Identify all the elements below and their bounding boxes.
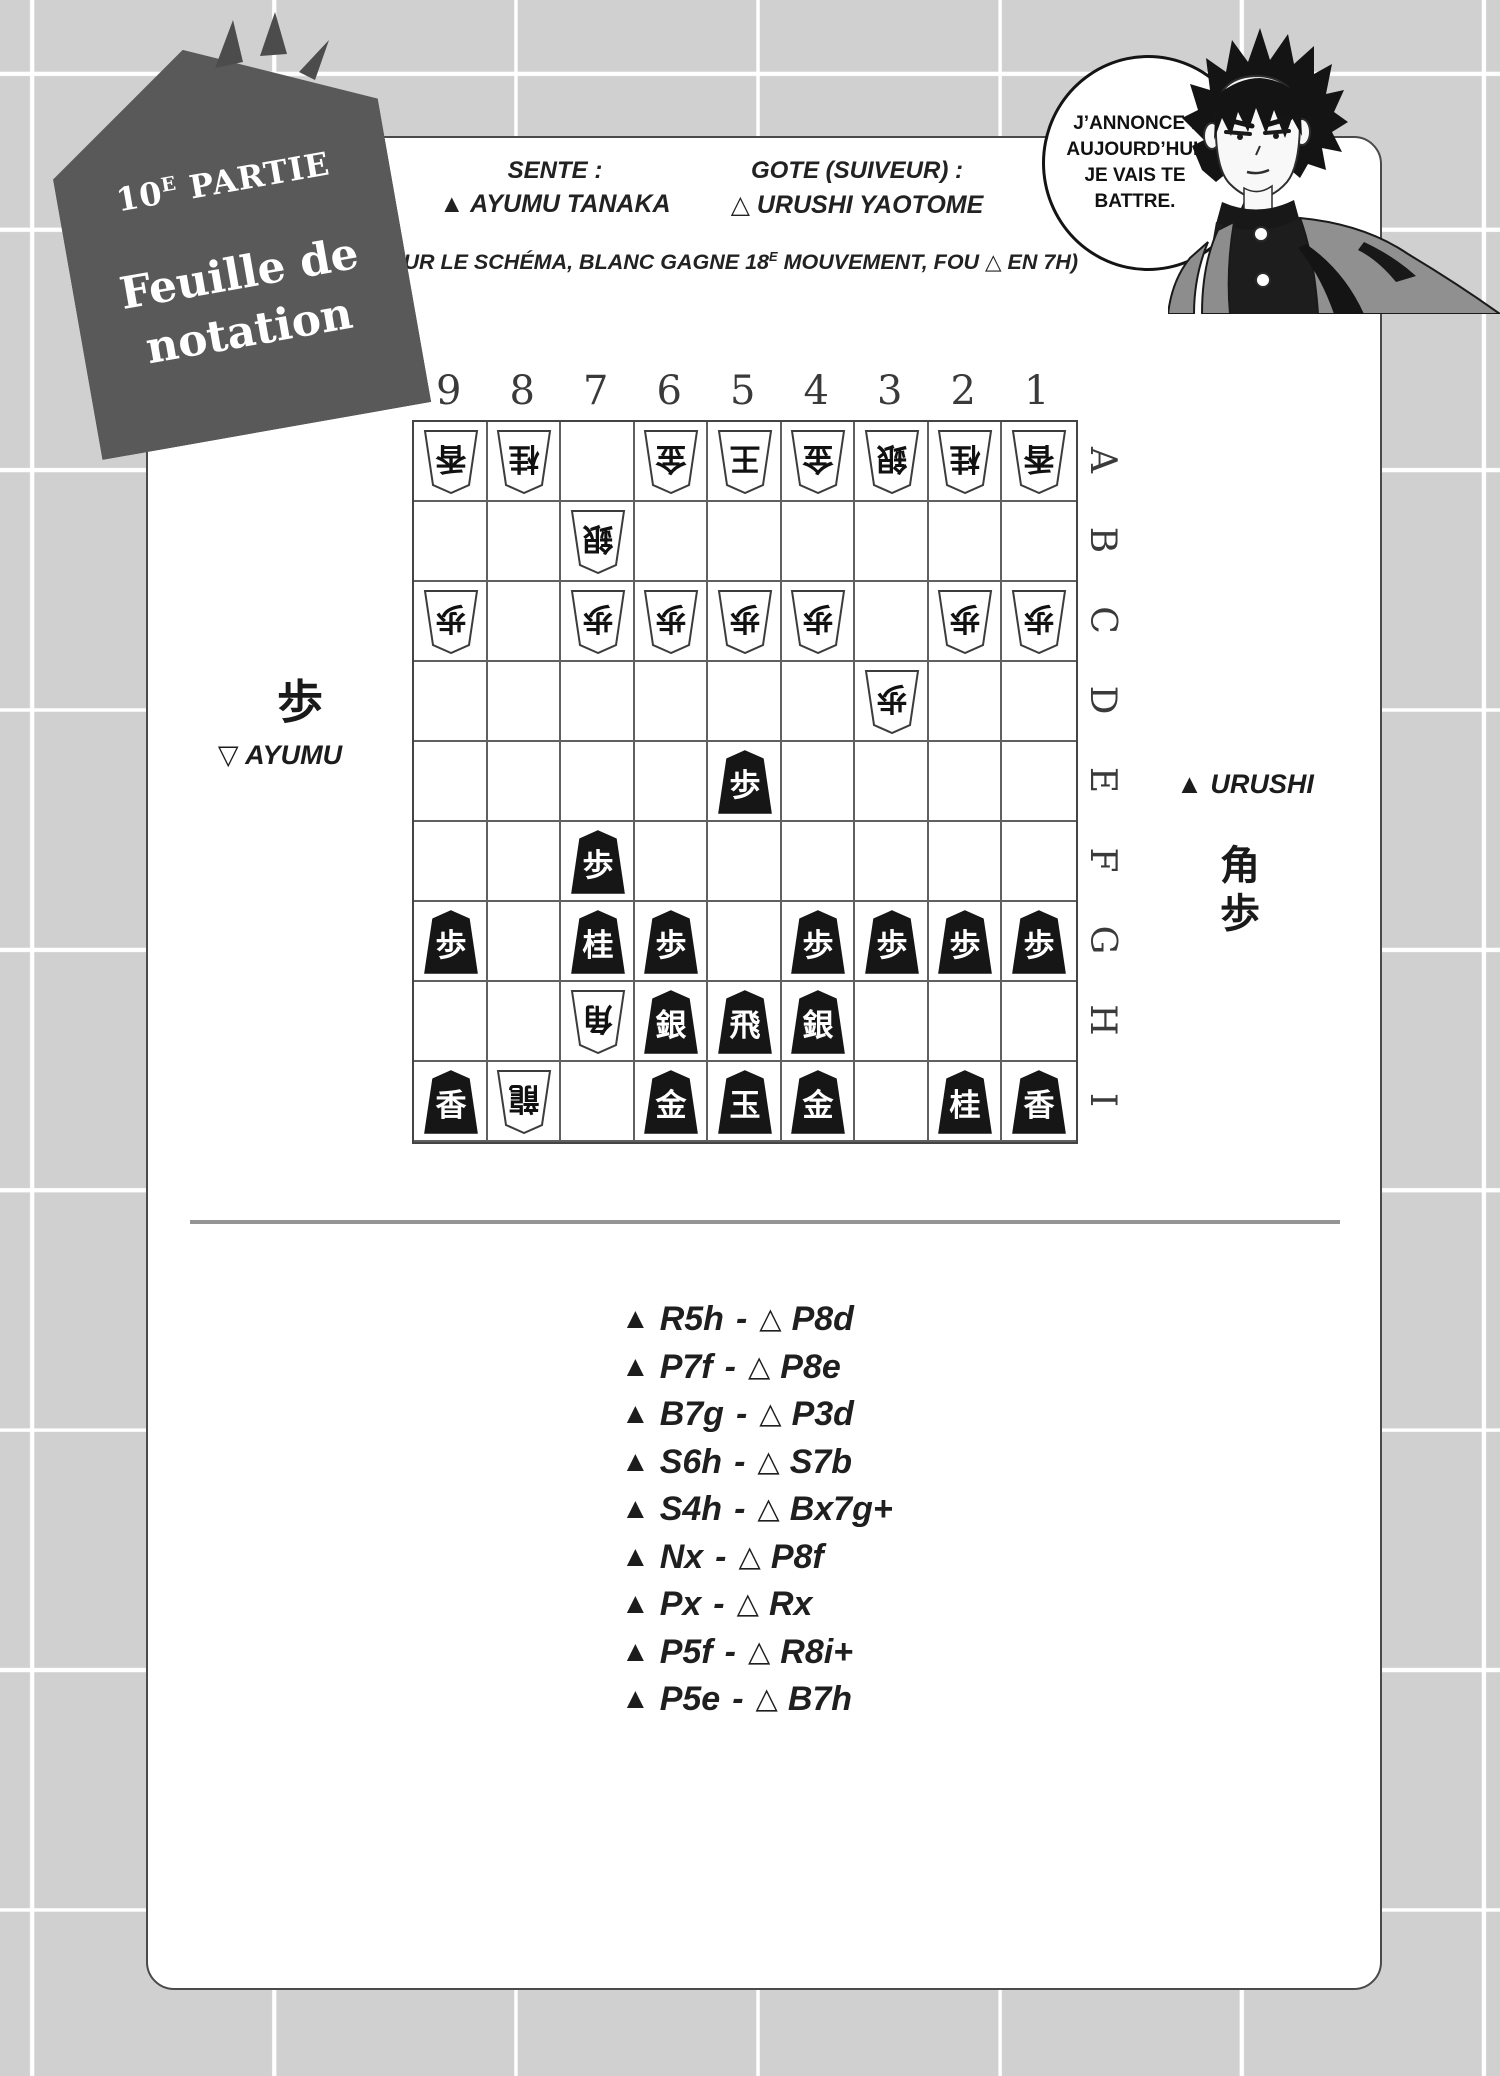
move-separator: - bbox=[732, 1680, 743, 1719]
column-label: 8 bbox=[486, 368, 560, 414]
shogi-piece-sente: 歩 bbox=[716, 749, 774, 815]
svg-text:龍: 龍 bbox=[509, 1080, 540, 1116]
board-cell bbox=[561, 662, 635, 742]
shogi-piece-gote: 歩 bbox=[863, 669, 921, 735]
svg-text:飛: 飛 bbox=[729, 1008, 760, 1044]
sente-mark: ▲ bbox=[621, 1543, 650, 1572]
character-drawing bbox=[1168, 18, 1500, 314]
shogi-piece-gote: 香 bbox=[422, 429, 480, 495]
left-player-label: ▽ AYUMU bbox=[150, 740, 410, 771]
svg-text:金: 金 bbox=[655, 440, 688, 476]
sente-mark: ▲ bbox=[621, 1685, 650, 1714]
shogi-piece-sente: 歩 bbox=[642, 909, 700, 975]
move-row: ▲P7f-△P8e bbox=[621, 1344, 893, 1392]
shogi-piece-gote: 歩 bbox=[1010, 589, 1068, 655]
shogi-piece-sente: 金 bbox=[642, 1069, 700, 1135]
svg-text:歩: 歩 bbox=[582, 848, 613, 884]
move-row: ▲P5e-△B7h bbox=[621, 1676, 893, 1724]
svg-text:桂: 桂 bbox=[950, 440, 981, 476]
sente-mark: ▲ bbox=[621, 1305, 650, 1334]
board-cell bbox=[929, 662, 1003, 742]
sente-mark: ▲ bbox=[621, 1495, 650, 1524]
shogi-piece-sente: 歩 bbox=[936, 909, 994, 975]
shogi-piece-sente: 飛 bbox=[716, 989, 774, 1055]
gote-mark: △ bbox=[737, 1590, 759, 1619]
move-separator: - bbox=[734, 1490, 745, 1529]
board-cell bbox=[414, 982, 488, 1062]
move-separator: - bbox=[725, 1633, 736, 1672]
board-cell bbox=[488, 582, 562, 662]
svg-text:金: 金 bbox=[802, 1088, 835, 1124]
board-cell bbox=[782, 662, 856, 742]
board-cell bbox=[488, 822, 562, 902]
urushi-hand-pieces: 角 歩 bbox=[1198, 842, 1282, 938]
sente-move: P5f bbox=[660, 1633, 713, 1672]
shogi-piece-sente: 桂 bbox=[936, 1069, 994, 1135]
gote-label: GOTE (SUIVEUR) : bbox=[692, 157, 1022, 185]
column-label: 7 bbox=[559, 368, 633, 414]
shogi-piece-sente: 歩 bbox=[789, 909, 847, 975]
svg-text:歩: 歩 bbox=[950, 600, 981, 636]
board-cell bbox=[635, 662, 709, 742]
right-player-label: ▲ URUSHI bbox=[1110, 769, 1380, 800]
gote-move: Rx bbox=[769, 1585, 812, 1624]
shogi-piece-gote: 歩 bbox=[642, 589, 700, 655]
shogi-piece-sente: 金 bbox=[789, 1069, 847, 1135]
svg-text:香: 香 bbox=[435, 1088, 466, 1124]
board-cell bbox=[855, 822, 929, 902]
svg-text:歩: 歩 bbox=[803, 928, 834, 964]
move-row: ▲P5f-△R8i+ bbox=[621, 1629, 893, 1677]
move-separator: - bbox=[725, 1348, 736, 1387]
svg-text:銀: 銀 bbox=[803, 1008, 834, 1044]
svg-text:角: 角 bbox=[582, 1000, 613, 1036]
board-cell bbox=[414, 502, 488, 582]
shogi-piece-gote: 歩 bbox=[569, 589, 627, 655]
svg-text:歩: 歩 bbox=[1023, 600, 1054, 636]
gote-mark: △ bbox=[748, 1638, 770, 1667]
shogi-piece-gote: 歩 bbox=[716, 589, 774, 655]
gote-move: P8d bbox=[792, 1300, 854, 1339]
shogi-piece-gote: 香 bbox=[1010, 429, 1068, 495]
gote-mark: △ bbox=[759, 1305, 781, 1334]
shogi-piece-gote: 龍 bbox=[495, 1069, 553, 1135]
board-cell bbox=[414, 822, 488, 902]
board-cell bbox=[488, 902, 562, 982]
move-list: ▲R5h-△P8d▲P7f-△P8e▲B7g-△P3d▲S6h-△S7b▲S4h… bbox=[621, 1296, 893, 1724]
move-separator: - bbox=[736, 1300, 747, 1339]
svg-text:歩: 歩 bbox=[876, 680, 907, 716]
shogi-piece-sente: 香 bbox=[422, 1069, 480, 1135]
column-label: 2 bbox=[927, 368, 1001, 414]
shogi-piece-sente: 玉 bbox=[716, 1069, 774, 1135]
column-label: 6 bbox=[633, 368, 707, 414]
board-cell bbox=[929, 982, 1003, 1062]
column-label: 5 bbox=[706, 368, 780, 414]
board-cell bbox=[488, 662, 562, 742]
board-cell bbox=[782, 742, 856, 822]
board-cell bbox=[561, 422, 635, 502]
sente-mark: ▲ bbox=[621, 1400, 650, 1429]
sente-mark: ▲ bbox=[621, 1638, 650, 1667]
svg-text:香: 香 bbox=[1023, 1088, 1054, 1124]
move-separator: - bbox=[734, 1443, 745, 1482]
gote-move: S7b bbox=[790, 1443, 852, 1482]
svg-text:歩: 歩 bbox=[950, 928, 981, 964]
chapter-number: 10E PARTIE bbox=[55, 134, 391, 229]
shogi-piece-sente: 銀 bbox=[642, 989, 700, 1055]
board-cell bbox=[414, 742, 488, 822]
board-cell bbox=[488, 502, 562, 582]
shogi-piece-sente: 歩 bbox=[569, 829, 627, 895]
board-cell bbox=[414, 662, 488, 742]
sente-move: S6h bbox=[660, 1443, 722, 1482]
gote-move: P8f bbox=[771, 1538, 824, 1577]
svg-text:桂: 桂 bbox=[582, 928, 613, 964]
emphasis-sparkles-icon bbox=[205, 10, 335, 94]
gote-move: P8e bbox=[780, 1348, 841, 1387]
move-row: ▲Nx-△P8f bbox=[621, 1534, 893, 1582]
gote-mark: △ bbox=[757, 1495, 779, 1524]
svg-text:銀: 銀 bbox=[582, 520, 613, 556]
sente-header: SENTE : ▲ AYUMU TANAKA bbox=[390, 157, 720, 219]
svg-text:金: 金 bbox=[802, 440, 835, 476]
gote-move: R8i+ bbox=[780, 1633, 853, 1672]
column-label: 3 bbox=[853, 368, 927, 414]
svg-text:銀: 銀 bbox=[656, 1008, 687, 1044]
svg-text:歩: 歩 bbox=[656, 600, 687, 636]
gote-mark: △ bbox=[756, 1685, 778, 1714]
sente-move: B7g bbox=[660, 1395, 724, 1434]
board-cell bbox=[561, 742, 635, 822]
board-cell bbox=[929, 822, 1003, 902]
sente-move: Nx bbox=[660, 1538, 703, 1577]
board-cell bbox=[488, 742, 562, 822]
gote-player-name: △ URUSHI YAOTOME bbox=[692, 190, 1022, 220]
sente-mark: ▲ bbox=[621, 1448, 650, 1477]
shogi-piece-gote: 歩 bbox=[422, 589, 480, 655]
svg-text:歩: 歩 bbox=[1023, 928, 1054, 964]
svg-text:歩: 歩 bbox=[435, 928, 466, 964]
gote-mark: △ bbox=[757, 1448, 779, 1477]
board-cell bbox=[855, 742, 929, 822]
ayumu-hand-pieces: 歩 bbox=[258, 666, 342, 732]
move-row: ▲Px-△Rx bbox=[621, 1581, 893, 1629]
sente-player-name: ▲ AYUMU TANAKA bbox=[390, 190, 720, 219]
shogi-piece-gote: 歩 bbox=[936, 589, 994, 655]
sente-mark: ▲ bbox=[621, 1590, 650, 1619]
board-cell bbox=[1002, 822, 1076, 902]
svg-text:歩: 歩 bbox=[803, 600, 834, 636]
sente-move: S4h bbox=[660, 1490, 722, 1529]
shogi-piece-gote: 金 bbox=[789, 429, 847, 495]
svg-text:香: 香 bbox=[1023, 440, 1054, 476]
gote-mark: △ bbox=[739, 1543, 761, 1572]
svg-text:歩: 歩 bbox=[729, 768, 760, 804]
board-cell bbox=[635, 822, 709, 902]
hand-piece: 歩 bbox=[1198, 890, 1282, 938]
svg-text:歩: 歩 bbox=[582, 600, 613, 636]
board-cell bbox=[855, 982, 929, 1062]
shogi-piece-sente: 歩 bbox=[863, 909, 921, 975]
board-cell bbox=[561, 1062, 635, 1142]
shogi-piece-gote: 銀 bbox=[863, 429, 921, 495]
move-separator: - bbox=[736, 1395, 747, 1434]
svg-text:香: 香 bbox=[435, 440, 466, 476]
shogi-piece-gote: 銀 bbox=[569, 509, 627, 575]
gote-move: P3d bbox=[792, 1395, 854, 1434]
gote-mark: △ bbox=[748, 1353, 770, 1382]
move-row: ▲S6h-△S7b bbox=[621, 1439, 893, 1487]
svg-text:歩: 歩 bbox=[876, 928, 907, 964]
svg-text:桂: 桂 bbox=[950, 1088, 981, 1124]
board-cell bbox=[782, 502, 856, 582]
board-cell bbox=[635, 502, 709, 582]
shogi-piece-sente: 桂 bbox=[569, 909, 627, 975]
svg-text:歩: 歩 bbox=[729, 600, 760, 636]
svg-text:桂: 桂 bbox=[509, 440, 540, 476]
board-cell bbox=[635, 742, 709, 822]
shogi-piece-gote: 角 bbox=[569, 989, 627, 1055]
diagram-note: (SUR LE SCHÉMA, BLANC GAGNE 18E MOUVEMEN… bbox=[370, 249, 1090, 275]
ayumu-character-illustration bbox=[1168, 18, 1500, 314]
hand-piece: 歩 bbox=[258, 666, 342, 732]
move-row: ▲S4h-△Bx7g+ bbox=[621, 1486, 893, 1534]
board-cell bbox=[855, 502, 929, 582]
gote-mark: △ bbox=[759, 1400, 781, 1429]
board-cell bbox=[855, 1062, 929, 1142]
shogi-piece-gote: 桂 bbox=[936, 429, 994, 495]
gote-move: B7h bbox=[788, 1680, 852, 1719]
column-label: 4 bbox=[780, 368, 854, 414]
sente-label: SENTE : bbox=[390, 157, 720, 185]
sente-move: P5e bbox=[660, 1680, 721, 1719]
move-separator: - bbox=[715, 1538, 726, 1577]
svg-text:金: 金 bbox=[655, 1088, 688, 1124]
shogi-piece-gote: 金 bbox=[642, 429, 700, 495]
svg-text:王: 王 bbox=[729, 440, 760, 476]
column-label: 1 bbox=[1000, 368, 1074, 414]
svg-text:歩: 歩 bbox=[656, 928, 687, 964]
sente-mark: ▲ bbox=[621, 1353, 650, 1382]
shogi-piece-sente: 香 bbox=[1010, 1069, 1068, 1135]
shogi-piece-sente: 歩 bbox=[1010, 909, 1068, 975]
section-divider bbox=[190, 1220, 1340, 1224]
board-column-labels: 987654321 bbox=[412, 368, 1074, 414]
shogi-piece-gote: 桂 bbox=[495, 429, 553, 495]
shogi-piece-sente: 歩 bbox=[422, 909, 480, 975]
move-separator: - bbox=[713, 1585, 724, 1624]
move-row: ▲B7g-△P3d bbox=[621, 1391, 893, 1439]
board-cell bbox=[708, 662, 782, 742]
shogi-piece-gote: 歩 bbox=[789, 589, 847, 655]
shogi-piece-gote: 王 bbox=[716, 429, 774, 495]
board-cell bbox=[782, 822, 856, 902]
gote-move: Bx7g+ bbox=[790, 1490, 893, 1529]
svg-text:銀: 銀 bbox=[876, 440, 907, 476]
board-cell bbox=[929, 742, 1003, 822]
svg-text:玉: 玉 bbox=[729, 1088, 760, 1124]
board-cell bbox=[1002, 502, 1076, 582]
board-cell bbox=[1002, 982, 1076, 1062]
svg-text:歩: 歩 bbox=[435, 600, 466, 636]
sente-move: P7f bbox=[660, 1348, 713, 1387]
board-cell bbox=[1002, 662, 1076, 742]
hand-piece: 角 bbox=[1198, 842, 1282, 890]
board-cell bbox=[855, 582, 929, 662]
sente-move: Px bbox=[660, 1585, 702, 1624]
move-row: ▲R5h-△P8d bbox=[621, 1296, 893, 1344]
gote-header: GOTE (SUIVEUR) : △ URUSHI YAOTOME bbox=[692, 157, 1022, 220]
board-cell bbox=[708, 822, 782, 902]
sente-move: R5h bbox=[660, 1300, 724, 1339]
shogi-board: 香桂金王金銀桂香銀歩歩歩歩歩歩歩歩歩歩歩桂歩歩歩歩歩角銀飛銀香龍金玉金桂香 bbox=[412, 420, 1078, 1144]
speech-line: BATTRE. bbox=[1095, 189, 1176, 215]
shogi-piece-sente: 銀 bbox=[789, 989, 847, 1055]
board-cell bbox=[708, 902, 782, 982]
board-cell bbox=[1002, 742, 1076, 822]
board-cell bbox=[708, 502, 782, 582]
board-cell bbox=[929, 502, 1003, 582]
board-cell bbox=[488, 982, 562, 1062]
